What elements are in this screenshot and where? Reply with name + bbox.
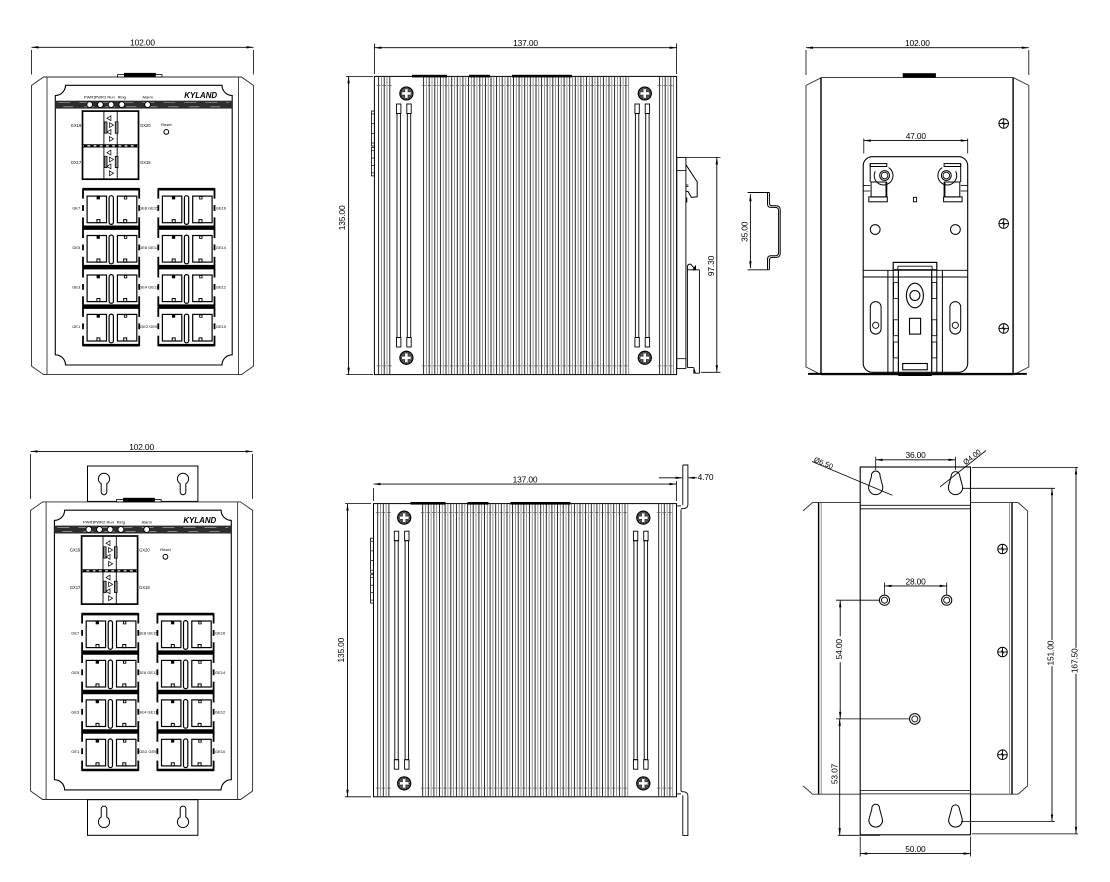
svg-text:Alarm: Alarm: [141, 520, 152, 525]
svg-text:GE12: GE12: [215, 710, 226, 715]
svg-text:GE4 GE11: GE4 GE11: [138, 710, 158, 715]
svg-text:102.00: 102.00: [129, 442, 154, 452]
svg-text:GX18: GX18: [139, 585, 150, 590]
svg-text:GE5: GE5: [71, 670, 80, 675]
svg-text:GE14: GE14: [216, 245, 227, 250]
svg-text:102.00: 102.00: [130, 38, 155, 48]
svg-text:167.50: 167.50: [1070, 648, 1080, 673]
svg-text:GE4 GE11: GE4 GE11: [139, 285, 159, 290]
svg-text:GE16: GE16: [215, 631, 226, 636]
svg-text:GE12: GE12: [216, 285, 227, 290]
svg-text:Run: Run: [107, 95, 114, 100]
svg-text:Reset: Reset: [160, 547, 171, 552]
svg-text:Ring: Ring: [117, 520, 125, 525]
svg-text:GX19: GX19: [70, 548, 81, 553]
svg-text:GE3: GE3: [71, 710, 80, 715]
svg-text:GE5: GE5: [72, 245, 81, 250]
svg-text:47.00: 47.00: [906, 131, 927, 141]
svg-text:PWR2: PWR2: [95, 95, 107, 100]
svg-text:GE7: GE7: [72, 206, 81, 211]
svg-text:53.07: 53.07: [829, 763, 839, 784]
svg-text:Ring: Ring: [118, 95, 126, 100]
svg-text:35.00: 35.00: [740, 221, 750, 242]
svg-text:50.00: 50.00: [905, 844, 926, 854]
svg-text:GX17: GX17: [70, 585, 81, 590]
svg-text:Run: Run: [107, 520, 114, 525]
svg-text:102.00: 102.00: [905, 38, 930, 48]
svg-text:Reset: Reset: [161, 122, 172, 127]
svg-text:137.00: 137.00: [513, 38, 538, 48]
svg-text:GX20: GX20: [140, 123, 151, 128]
svg-text:97.30: 97.30: [706, 255, 716, 276]
svg-text:GE6 GE13: GE6 GE13: [138, 670, 158, 675]
svg-text:KYLAND: KYLAND: [184, 91, 217, 100]
svg-text:151.00: 151.00: [1046, 640, 1056, 665]
svg-text:GX17: GX17: [71, 160, 82, 165]
svg-text:GE16: GE16: [216, 206, 227, 211]
svg-text:GE10: GE10: [216, 324, 227, 329]
svg-text:36.00: 36.00: [905, 450, 926, 460]
svg-text:GX18: GX18: [140, 160, 151, 165]
svg-text:GE7: GE7: [71, 631, 80, 636]
svg-text:GE2 GE9: GE2 GE9: [140, 324, 158, 329]
svg-text:GX20: GX20: [139, 548, 150, 553]
svg-text:GE10: GE10: [215, 749, 226, 754]
svg-text:GE1: GE1: [72, 324, 81, 329]
svg-text:PWR2: PWR2: [94, 520, 106, 525]
svg-text:54.00: 54.00: [834, 639, 844, 660]
svg-text:GE8 GE15: GE8 GE15: [139, 206, 159, 211]
svg-text:135.00: 135.00: [337, 205, 347, 230]
svg-text:Alarm: Alarm: [142, 95, 153, 100]
svg-text:GX19: GX19: [71, 123, 82, 128]
svg-text:4.70: 4.70: [698, 472, 714, 482]
svg-text:137.00: 137.00: [513, 475, 538, 485]
svg-text:GE1: GE1: [71, 749, 80, 754]
svg-text:KYLAND: KYLAND: [183, 516, 216, 525]
svg-text:GE6 GE13: GE6 GE13: [139, 245, 159, 250]
svg-text:28.00: 28.00: [905, 576, 926, 586]
svg-text:GE14: GE14: [215, 670, 226, 675]
svg-text:135.00: 135.00: [336, 637, 346, 662]
svg-text:GE8 GE15: GE8 GE15: [138, 631, 158, 636]
svg-text:GE2 GE9: GE2 GE9: [139, 749, 157, 754]
svg-text:GE3: GE3: [72, 285, 81, 290]
